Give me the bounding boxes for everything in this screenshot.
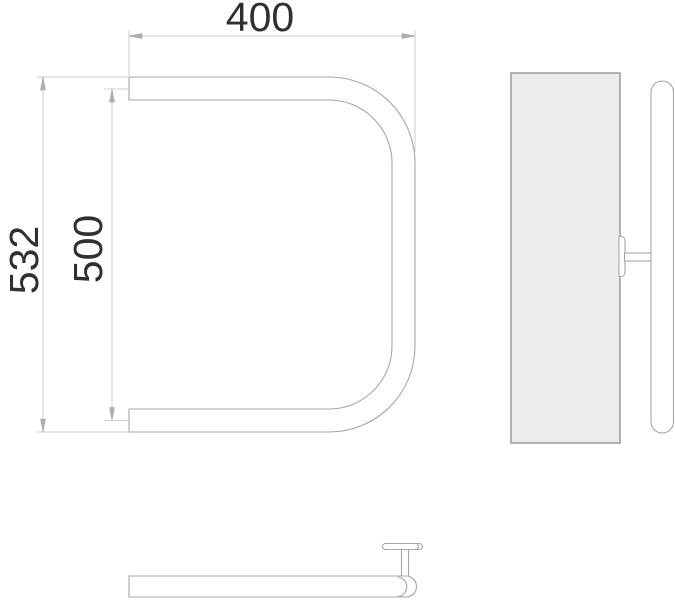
arrowhead-down-icon [109,408,114,421]
arrowhead-right-icon [402,33,415,38]
dim-label-width: 400 [226,0,294,40]
arrowhead-up-icon [109,89,114,102]
rail-tube-plan-outline [129,576,417,597]
arrowhead-down-icon [40,419,45,432]
arrowhead-left-icon [129,33,142,38]
rail-tube-front-outline [129,77,415,432]
dimension-width: 400 [129,0,415,152]
wall-plate [511,73,620,443]
mounting-flange-plan [383,544,423,550]
towel-rail-drawing: 400 532 500 [0,0,675,600]
bracket-arm-side [625,253,652,261]
plan-view [129,544,423,598]
arrowhead-up-icon [40,77,45,90]
dim-label-rail-pitch: 500 [65,215,111,283]
dim-label-overall-height: 532 [1,226,47,294]
rail-tube-side-profile [651,81,674,433]
front-view [129,77,415,432]
side-view [511,73,674,443]
technical-drawing-canvas: 400 532 500 [0,0,675,600]
dimension-rail-pitch: 500 [65,89,129,421]
